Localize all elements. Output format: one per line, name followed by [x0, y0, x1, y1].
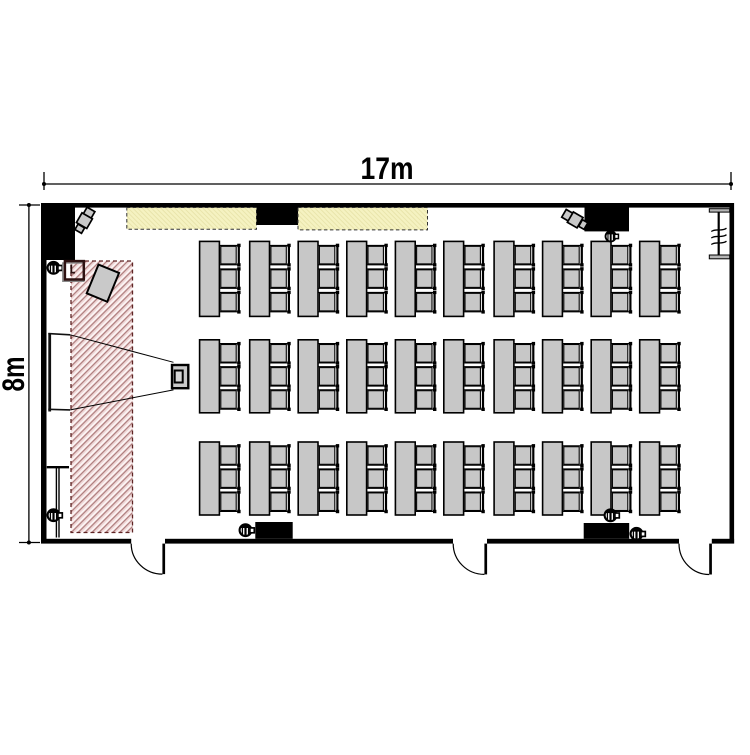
svg-text:8m: 8m: [0, 357, 31, 392]
svg-text:17m: 17m: [361, 150, 414, 186]
